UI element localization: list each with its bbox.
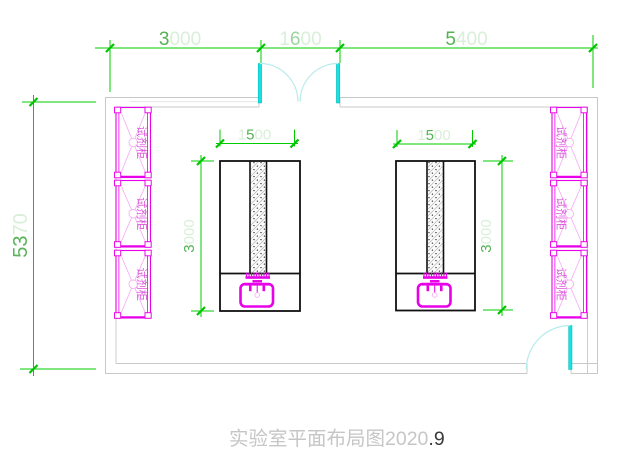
svg-text:试剂柜: 试剂柜 — [135, 126, 149, 159]
svg-text:3000: 3000 — [478, 219, 495, 252]
svg-text:3000: 3000 — [159, 29, 201, 50]
svg-text:5370: 5370 — [10, 213, 32, 258]
svg-text:试剂柜: 试剂柜 — [135, 268, 149, 301]
svg-text:试剂柜: 试剂柜 — [555, 126, 569, 159]
svg-text:实验室平面布局图2020.9: 实验室平面布局图2020.9 — [229, 428, 445, 450]
svg-text:5400: 5400 — [445, 29, 487, 50]
svg-text:1500: 1500 — [417, 127, 450, 144]
svg-text:试剂柜: 试剂柜 — [555, 268, 569, 301]
svg-text:1500: 1500 — [238, 127, 271, 144]
svg-text:试剂柜: 试剂柜 — [555, 197, 569, 230]
svg-text:试剂柜: 试剂柜 — [135, 197, 149, 230]
svg-text:1600: 1600 — [279, 29, 321, 50]
svg-text:3000: 3000 — [181, 219, 198, 252]
